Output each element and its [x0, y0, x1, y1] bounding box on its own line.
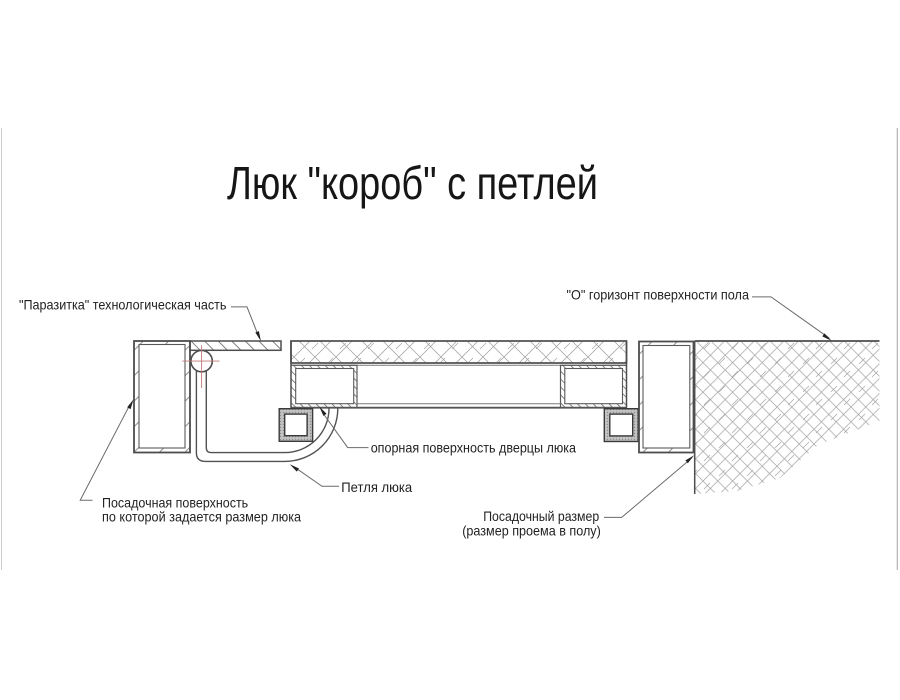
svg-text:Люк "короб" с петлей: Люк "короб" с петлей	[227, 157, 598, 209]
svg-text:(размер проема в полу): (размер проема в полу)	[462, 522, 601, 538]
svg-text:Петля люка: Петля люка	[341, 479, 412, 495]
svg-text:опорная поверхность дверцы люк: опорная поверхность дверцы люка	[371, 440, 576, 456]
svg-text:"О" горизонт поверхности пола: "О" горизонт поверхности пола	[567, 287, 750, 303]
svg-text:по которой задается размер люк: по которой задается размер люка	[102, 509, 301, 525]
svg-text:"Паразитка" технологическая ча: "Паразитка" технологическая часть	[19, 296, 227, 312]
